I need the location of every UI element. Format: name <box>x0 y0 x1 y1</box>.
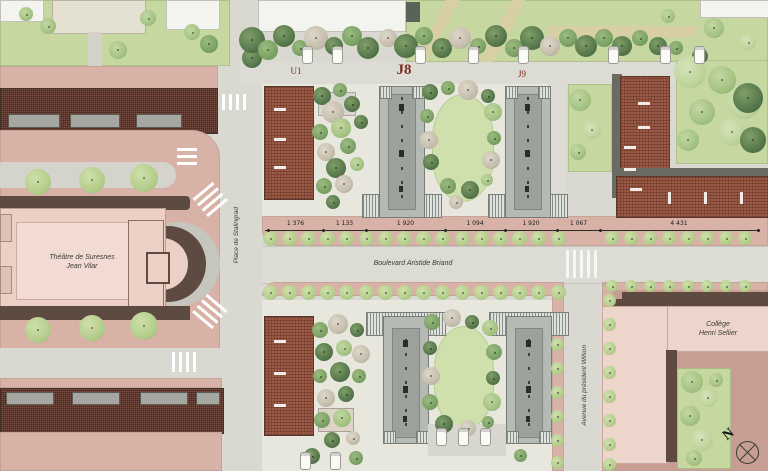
tree <box>352 369 366 383</box>
tree <box>282 285 297 300</box>
tree <box>397 231 412 246</box>
roof-ridge-mark <box>274 166 286 169</box>
tree <box>263 285 278 300</box>
car-icon <box>300 452 311 470</box>
tree <box>575 35 597 57</box>
tree <box>632 30 648 46</box>
tree <box>320 285 335 300</box>
tree <box>338 386 354 402</box>
tree <box>349 451 363 465</box>
tree <box>465 315 479 329</box>
tower-roof-equipment <box>399 104 404 111</box>
car-icon <box>302 46 313 64</box>
tree <box>551 410 564 423</box>
roof-ridge-mark <box>668 192 671 204</box>
roof-ridge-mark <box>274 372 286 375</box>
roof-ridge-mark <box>274 340 286 343</box>
roof-ridge-mark <box>274 138 286 141</box>
tree <box>739 280 751 292</box>
tree <box>514 449 527 462</box>
tree <box>551 456 564 469</box>
dimension-value: 1 067 <box>557 220 600 228</box>
tree <box>551 434 564 447</box>
tower-roof-equipment <box>526 386 531 393</box>
roof-ridge-mark <box>740 192 743 204</box>
roof-ridge-mark <box>638 126 650 129</box>
theatre-label: Théâtre de Suresnes Jean Vilar <box>20 253 144 271</box>
tree <box>25 169 51 195</box>
tree <box>551 231 566 246</box>
tree <box>350 157 364 171</box>
tree <box>686 450 702 466</box>
tree <box>455 231 470 246</box>
tree <box>570 144 586 160</box>
tree <box>551 386 564 399</box>
tree <box>680 406 700 426</box>
dimension-value: 1 133 <box>323 220 366 228</box>
tree <box>339 231 354 246</box>
tree <box>435 231 450 246</box>
tree <box>423 154 439 170</box>
tower-roof-equipment <box>526 416 530 422</box>
tree <box>704 18 724 38</box>
tree <box>603 366 616 379</box>
tower-roof-equipment <box>403 340 408 347</box>
roof-ridge-mark <box>638 102 650 105</box>
tree <box>449 195 463 209</box>
tree <box>691 429 713 451</box>
tree <box>569 89 591 111</box>
tree <box>423 341 437 355</box>
theatre-label-line2: Jean Vilar <box>20 262 144 271</box>
tree <box>140 10 156 26</box>
tree <box>643 231 657 245</box>
tree <box>354 115 368 129</box>
tree <box>420 131 438 149</box>
tree <box>699 389 717 407</box>
tree <box>333 83 347 97</box>
tree <box>551 285 566 300</box>
dimension-value: 1 920 <box>366 220 445 228</box>
tower-roof-equipment <box>526 340 531 347</box>
dimension-line <box>265 230 758 231</box>
tree <box>79 167 105 193</box>
tree <box>378 285 393 300</box>
tree <box>512 285 527 300</box>
tree <box>740 127 766 153</box>
tree <box>512 231 527 246</box>
tree <box>336 340 352 356</box>
avenue-wilson-label: Avenue du président Wilson <box>581 323 589 447</box>
tree <box>301 231 316 246</box>
tree <box>313 369 327 383</box>
tree <box>738 231 752 245</box>
dimension-value: 1 376 <box>268 220 323 228</box>
tree <box>662 231 676 245</box>
tree <box>333 409 351 427</box>
tree <box>316 178 332 194</box>
tree <box>624 231 638 245</box>
tree <box>357 37 379 59</box>
tree <box>481 174 493 186</box>
vegetation-layer <box>0 0 768 471</box>
tower-roof-equipment <box>525 150 530 157</box>
tree <box>455 285 470 300</box>
tree <box>531 231 546 246</box>
tree <box>416 231 431 246</box>
tree <box>701 280 713 292</box>
dimension-value: 1 094 <box>445 220 505 228</box>
tree <box>378 231 393 246</box>
tree <box>486 344 502 360</box>
tree <box>440 178 456 194</box>
tree <box>312 322 328 338</box>
car-icon <box>332 46 343 64</box>
tree <box>482 416 494 428</box>
car-icon <box>436 428 447 446</box>
tree <box>482 320 498 336</box>
tree <box>397 285 412 300</box>
tree <box>485 25 507 47</box>
tree <box>340 138 356 154</box>
tree <box>415 27 433 45</box>
tree <box>359 231 374 246</box>
car-icon <box>608 46 619 64</box>
place-stalingrad-label: Place de Stalingrad <box>233 180 241 290</box>
tree <box>663 280 675 292</box>
roof-ridge-mark <box>624 168 636 171</box>
tree <box>424 314 440 330</box>
tree <box>493 231 508 246</box>
block-label-j9: J9 <box>508 69 536 79</box>
tree <box>315 343 333 361</box>
tree <box>481 89 495 103</box>
tree <box>681 371 703 393</box>
tree <box>422 84 438 100</box>
tree <box>700 231 714 245</box>
college-label: Collège Henri Sellier <box>666 320 768 338</box>
tree <box>326 195 340 209</box>
block-label-j8: J8 <box>386 62 422 79</box>
tree <box>40 18 56 34</box>
boulevard-label: Boulevard Aristide Briand <box>333 259 493 268</box>
tree <box>350 323 364 337</box>
tree <box>282 231 297 246</box>
tree <box>681 231 695 245</box>
car-icon <box>694 46 705 64</box>
tree <box>625 280 637 292</box>
tree <box>551 338 564 351</box>
tree <box>583 121 601 139</box>
tree <box>720 280 732 292</box>
tree <box>317 389 335 407</box>
tower-roof-equipment <box>399 150 404 157</box>
tree <box>493 285 508 300</box>
tree <box>273 25 295 47</box>
tree <box>324 432 340 448</box>
tree <box>352 345 370 363</box>
tree <box>740 34 756 50</box>
tree <box>422 367 440 385</box>
tree <box>312 124 328 140</box>
tree <box>314 412 330 428</box>
tree <box>606 280 618 292</box>
tree <box>551 362 564 375</box>
tree <box>733 83 763 113</box>
tree <box>458 80 478 100</box>
tree <box>200 35 218 53</box>
tree <box>301 285 316 300</box>
tree <box>484 103 502 121</box>
tree <box>474 231 489 246</box>
roof-ridge-mark <box>624 146 636 149</box>
tower-roof-equipment <box>399 186 403 192</box>
tree <box>603 390 616 403</box>
roof-ridge-mark <box>274 108 286 111</box>
tree <box>422 394 438 410</box>
tree <box>644 280 656 292</box>
tree <box>339 285 354 300</box>
block-label-u1: U1 <box>282 66 310 76</box>
tree <box>531 285 546 300</box>
tree <box>603 438 616 451</box>
tower-roof-equipment <box>525 186 529 192</box>
tree <box>605 231 619 245</box>
tree <box>483 393 501 411</box>
tree <box>25 317 51 343</box>
site-plan: 1 376 1 133 1 920 1 094 1 920 1 067 4 43… <box>0 0 768 471</box>
tree <box>689 99 715 125</box>
tree <box>184 24 200 40</box>
car-icon <box>480 428 491 446</box>
tree <box>709 373 723 387</box>
college-label-line2: Henri Sellier <box>666 329 768 338</box>
tree <box>331 118 351 138</box>
tree <box>335 175 353 193</box>
college-label-line1: Collège <box>666 320 768 329</box>
tree <box>719 231 733 245</box>
tree <box>441 81 455 95</box>
tree <box>661 9 675 23</box>
tree <box>677 129 699 151</box>
tower-roof-equipment <box>403 416 407 422</box>
tower-roof-equipment <box>525 104 530 111</box>
tree <box>449 27 471 49</box>
tree <box>595 29 613 47</box>
tree <box>487 131 501 145</box>
tree <box>330 362 350 382</box>
tree <box>359 285 374 300</box>
tower-roof-equipment <box>403 386 408 393</box>
tree <box>603 342 616 355</box>
car-icon <box>458 428 469 446</box>
car-icon <box>660 46 671 64</box>
roof-ridge-mark <box>704 192 707 204</box>
tree <box>603 458 616 471</box>
car-icon <box>518 46 529 64</box>
tree <box>603 294 616 307</box>
car-icon <box>330 452 341 470</box>
tree <box>416 285 431 300</box>
tree <box>482 151 500 169</box>
tree <box>603 414 616 427</box>
dimension-value: 1 920 <box>505 220 557 228</box>
tree <box>443 309 461 327</box>
tree <box>420 109 434 123</box>
tree <box>130 164 158 192</box>
north-arrow-circle <box>736 441 759 464</box>
roof-ridge-mark <box>630 188 642 191</box>
tree <box>435 285 450 300</box>
tree <box>328 314 348 334</box>
tree <box>461 181 479 199</box>
tree <box>130 312 158 340</box>
roof-ridge-mark <box>274 404 286 407</box>
tree <box>263 231 278 246</box>
tree <box>109 41 127 59</box>
tree <box>344 96 360 112</box>
car-icon <box>468 46 479 64</box>
tree <box>603 318 616 331</box>
tree <box>682 280 694 292</box>
dimension-value: 4 431 <box>600 220 758 228</box>
tree <box>346 431 360 445</box>
tree <box>19 7 33 21</box>
tree <box>486 371 500 385</box>
tree <box>540 36 560 56</box>
tree <box>320 231 335 246</box>
tree <box>669 41 683 55</box>
tree <box>474 285 489 300</box>
theatre-label-line1: Théâtre de Suresnes <box>20 253 144 262</box>
tree <box>79 315 105 341</box>
